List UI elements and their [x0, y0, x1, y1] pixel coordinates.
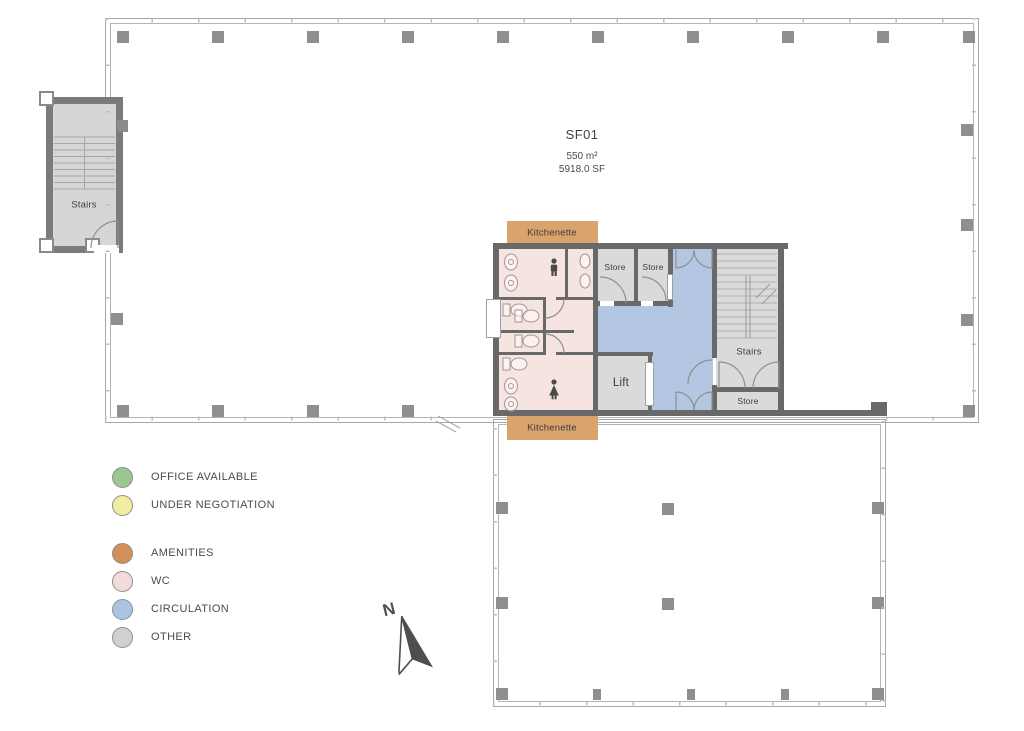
structural-column	[963, 405, 975, 417]
wc-partition	[565, 243, 568, 300]
legend-item-other: OTHER	[112, 626, 275, 648]
unit-area-metric: 550 m²	[522, 150, 642, 163]
wc-partition	[498, 330, 574, 333]
structural-column	[872, 597, 884, 609]
lift-door-recess	[645, 362, 654, 406]
structural-column	[496, 502, 508, 514]
structural-column	[687, 31, 699, 43]
wall	[493, 410, 878, 416]
structural-column	[307, 405, 319, 417]
structural-column	[496, 688, 508, 700]
wall	[712, 387, 784, 392]
room-label-stairs-west: Stairs	[71, 200, 96, 211]
wall	[712, 243, 717, 358]
legend-swatch-under-negotiation	[112, 495, 133, 516]
room-label-store-1: Store	[604, 262, 625, 272]
legend-label-circulation: CIRCULATION	[151, 603, 229, 615]
wc-partition	[556, 352, 594, 355]
wall	[871, 402, 887, 416]
legend-item-office-available: OFFICE AVAILABLE	[112, 466, 275, 488]
column-pad	[39, 238, 54, 253]
service-shaft	[486, 299, 501, 338]
lower-wing-outline-inner	[498, 424, 881, 702]
legend-item-wc: WC	[112, 570, 275, 592]
column-pad	[39, 91, 54, 106]
room-fill-store-1	[598, 248, 635, 302]
room-fill-corridor-arm	[597, 305, 673, 353]
wc-partition	[556, 297, 594, 300]
room-fill-stairs-core	[716, 248, 779, 388]
north-arrow: N	[376, 598, 446, 678]
door-opening	[641, 301, 653, 306]
structural-column	[117, 31, 129, 43]
structural-column	[961, 124, 973, 136]
room-label-store-3: Store	[737, 396, 758, 406]
room-label-kitchenette-top: Kitchenette	[527, 228, 577, 239]
structural-column	[662, 503, 674, 515]
legend-item-circulation: CIRCULATION	[112, 598, 275, 620]
structural-column	[593, 689, 601, 700]
legend-item-amenities: AMENITIES	[112, 542, 275, 564]
legend-label-under-negotiation: UNDER NEGOTIATION	[151, 499, 275, 511]
room-label-kitchenette-bottom: Kitchenette	[527, 423, 577, 434]
room-label-lift: Lift	[613, 377, 629, 389]
wall	[493, 243, 788, 249]
legend-swatch-circulation	[112, 599, 133, 620]
wc-partition	[543, 297, 546, 355]
structural-column	[212, 405, 224, 417]
room-fill-corridor	[673, 248, 713, 411]
lower-wing-outline	[493, 419, 886, 707]
structural-column	[963, 31, 975, 43]
stair-block-west	[46, 97, 123, 253]
wall	[593, 243, 598, 416]
structural-column	[877, 31, 889, 43]
room-fill-corridor-south	[651, 352, 673, 411]
door-opening	[600, 301, 614, 306]
stair-floor-west	[53, 104, 116, 246]
unit-id: SF01	[522, 127, 642, 142]
structural-column	[872, 502, 884, 514]
legend-label-other: OTHER	[151, 631, 192, 643]
unit-area-imperial: 5918.0 SF	[522, 163, 642, 176]
structural-column	[687, 689, 695, 700]
structural-column	[212, 31, 224, 43]
north-arrow-icon	[385, 612, 434, 679]
floor-plan: Stairs Kitchenette Kitchenette Store Sto…	[0, 0, 1024, 731]
legend-swatch-office-available	[112, 467, 133, 488]
unit-label-sf01[interactable]: SF01 550 m² 5918.0 SF	[522, 127, 642, 176]
structural-column	[402, 31, 414, 43]
legend-item-under-negotiation: UNDER NEGOTIATION	[112, 494, 275, 516]
legend: OFFICE AVAILABLE UNDER NEGOTIATION AMENI…	[112, 466, 275, 654]
structural-column	[782, 31, 794, 43]
legend-label-office-available: OFFICE AVAILABLE	[151, 471, 258, 483]
legend-swatch-other	[112, 627, 133, 648]
legend-swatch-wc	[112, 571, 133, 592]
legend-label-amenities: AMENITIES	[151, 547, 214, 559]
structural-column	[111, 313, 123, 325]
door-opening	[94, 245, 119, 253]
structural-column	[781, 689, 789, 700]
legend-label-wc: WC	[151, 575, 170, 587]
room-fill-store-2	[637, 248, 669, 302]
wall	[634, 248, 638, 304]
wc-partition	[498, 297, 545, 300]
wall-tab	[117, 120, 128, 132]
structural-column	[592, 31, 604, 43]
wall-niche	[667, 274, 673, 300]
room-label-stairs-core: Stairs	[736, 347, 761, 358]
structural-column	[961, 219, 973, 231]
structural-column	[872, 688, 884, 700]
structural-column	[497, 31, 509, 43]
wall	[593, 352, 653, 356]
structural-column	[402, 405, 414, 417]
structural-column	[662, 598, 674, 610]
structural-column	[496, 597, 508, 609]
structural-column	[117, 405, 129, 417]
structural-column	[961, 314, 973, 326]
wc-partition	[498, 352, 545, 355]
structural-column	[307, 31, 319, 43]
room-label-store-2: Store	[642, 262, 663, 272]
legend-swatch-amenities	[112, 543, 133, 564]
